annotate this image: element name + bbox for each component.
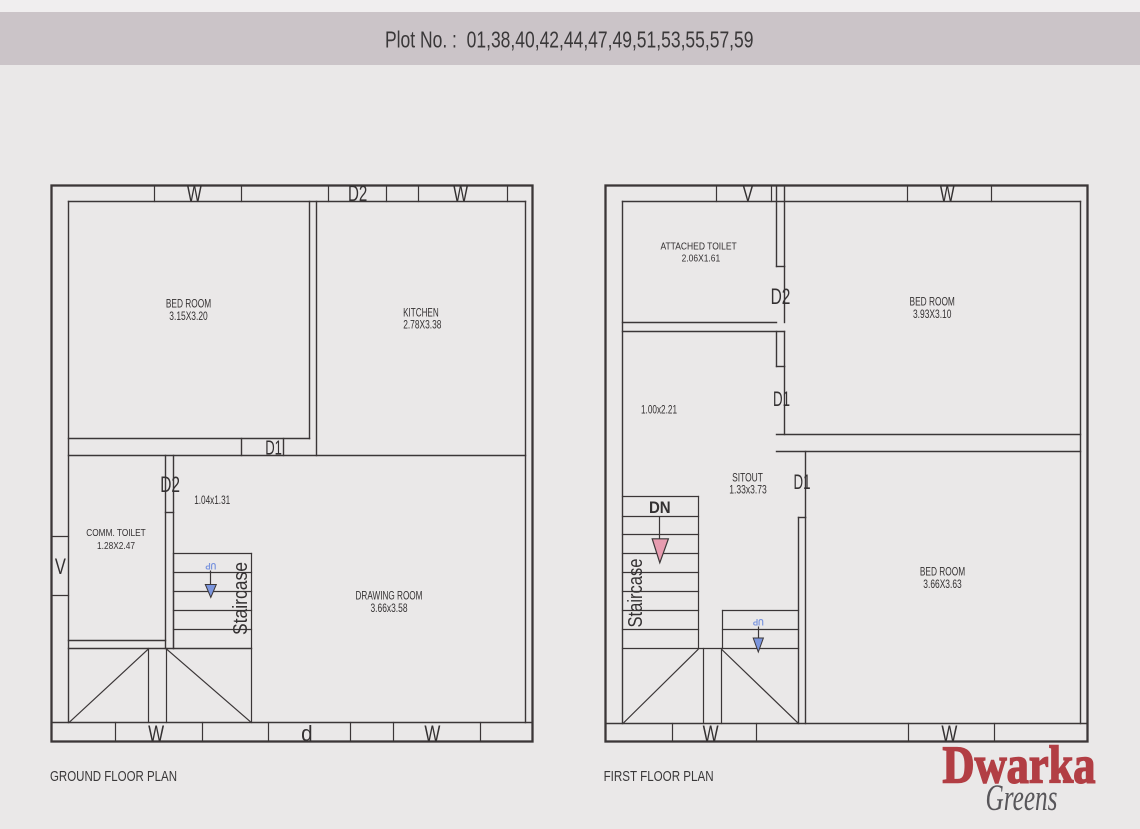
svg-text:COMM. TOILET: COMM. TOILET bbox=[86, 527, 146, 539]
svg-text:UP: UP bbox=[205, 560, 217, 571]
svg-text:W: W bbox=[940, 181, 955, 206]
svg-text:3.15X3.20: 3.15X3.20 bbox=[169, 311, 207, 323]
svg-text:W: W bbox=[187, 181, 202, 206]
svg-text:V: V bbox=[743, 181, 754, 206]
svg-text:BED ROOM: BED ROOM bbox=[920, 567, 965, 579]
svg-text:2.06X1.61: 2.06X1.61 bbox=[682, 253, 721, 265]
svg-text:D2: D2 bbox=[348, 181, 367, 206]
svg-text:BED ROOM: BED ROOM bbox=[166, 298, 211, 310]
svg-text:Greens: Greens bbox=[986, 778, 1058, 819]
svg-text:d: d bbox=[301, 721, 313, 746]
svg-text:BED ROOM: BED ROOM bbox=[910, 297, 955, 309]
svg-text:DRAWING ROOM: DRAWING ROOM bbox=[356, 591, 423, 603]
svg-text:W: W bbox=[424, 721, 440, 746]
svg-text:W: W bbox=[453, 181, 468, 206]
svg-text:1.28X2.47: 1.28X2.47 bbox=[97, 540, 135, 552]
svg-text:D2: D2 bbox=[160, 472, 180, 497]
svg-text:3.93X3.10: 3.93X3.10 bbox=[913, 309, 951, 321]
svg-text:DN: DN bbox=[649, 498, 671, 517]
svg-text:FIRST FLOOR PLAN: FIRST FLOOR PLAN bbox=[604, 768, 714, 785]
svg-text:D1: D1 bbox=[773, 387, 790, 411]
svg-text:UP: UP bbox=[752, 616, 764, 627]
svg-text:1.00x2.21: 1.00x2.21 bbox=[641, 405, 677, 417]
svg-text:W: W bbox=[148, 721, 164, 746]
svg-text:Staircase: Staircase bbox=[625, 559, 647, 628]
svg-text:3.66X3.63: 3.66X3.63 bbox=[923, 579, 961, 591]
svg-text:3.66x3.58: 3.66x3.58 bbox=[371, 603, 408, 615]
svg-text:1.33x3.73: 1.33x3.73 bbox=[729, 484, 767, 496]
svg-text:Plot No. : 01,38,40,42,44,47,: Plot No. : 01,38,40,42,44,47,49,51,53,55… bbox=[385, 27, 754, 53]
svg-text:2.78X3.38: 2.78X3.38 bbox=[403, 318, 441, 332]
svg-text:W: W bbox=[703, 721, 719, 746]
svg-text:SITOUT: SITOUT bbox=[732, 473, 763, 485]
svg-text:Staircase: Staircase bbox=[230, 562, 252, 635]
svg-text:D1: D1 bbox=[265, 438, 282, 460]
svg-text:ATTACHED TOILET: ATTACHED TOILET bbox=[660, 240, 737, 252]
svg-text:1.04x1.31: 1.04x1.31 bbox=[194, 495, 230, 507]
svg-text:GROUND FLOOR PLAN: GROUND FLOOR PLAN bbox=[50, 768, 177, 785]
svg-text:D1: D1 bbox=[794, 470, 811, 494]
svg-text:V: V bbox=[55, 554, 66, 579]
svg-text:D2: D2 bbox=[771, 284, 791, 309]
